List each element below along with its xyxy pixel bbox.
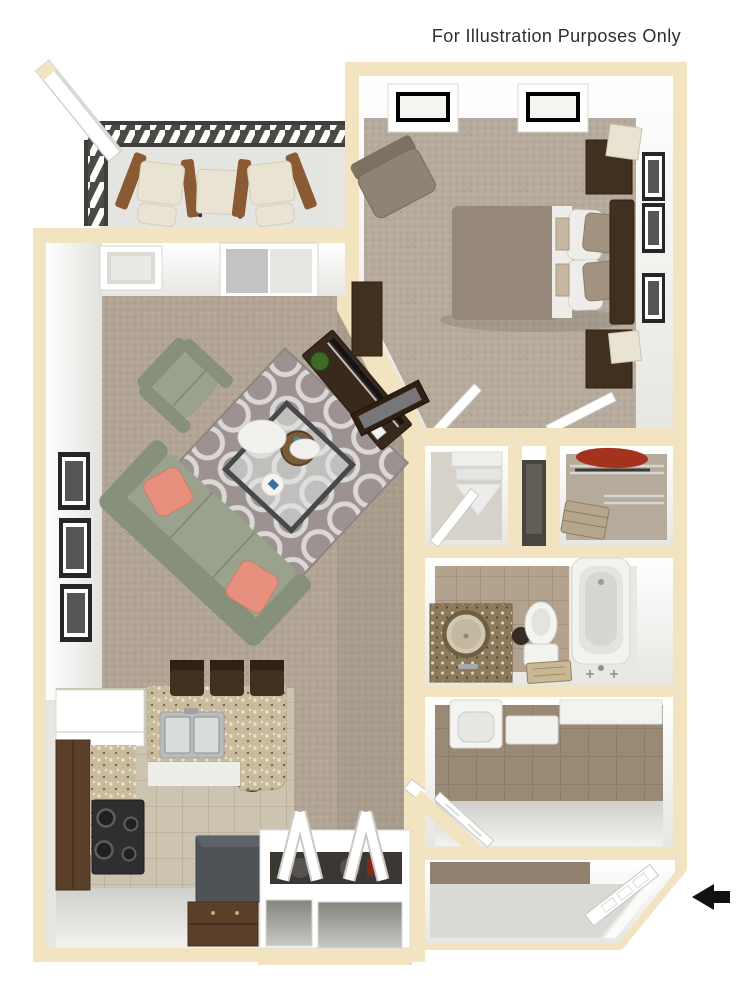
bedroom-window [518,84,588,132]
lamp [606,124,642,160]
washer [450,700,502,748]
bedroom-wall-art [642,152,665,323]
vanity-faucet [458,664,478,669]
floorplan-image: For Illustration Purposes Only [0,0,750,1000]
dryer [506,716,558,744]
closet-lower-opening [266,900,312,946]
kitchen [46,660,294,948]
kitchen-counter-white [56,690,144,746]
counter-side-face [148,762,240,786]
stove [92,800,144,874]
living-window [100,246,162,290]
bed [440,200,634,332]
kitchen-chest [188,902,258,946]
bar-stools [170,660,284,696]
accent-pillow [556,264,569,296]
tub-spout [598,665,604,671]
closet-row [413,428,687,560]
headboard [610,200,634,324]
vanity [430,604,512,682]
basket [561,500,610,539]
walk-in-closet [560,446,673,546]
kitchen-sink [160,708,224,758]
water-heater [526,464,542,534]
balcony-right-wall [330,143,345,228]
laundry-room [412,697,673,866]
entry-carpet [430,862,590,884]
linen-closet [425,446,508,547]
refrigerator [196,836,268,902]
bathroom [413,558,687,697]
dresser [352,282,382,356]
utility-closet [522,446,546,546]
balcony-sliding-door [220,243,318,299]
laundry-closet [260,812,410,948]
bathtub [572,558,630,678]
faucet [184,708,198,714]
wall-art-frames [58,452,92,642]
accent-pillow [556,218,569,250]
disclaimer-text: For Illustration Purposes Only [432,26,681,46]
laundry-shelf [560,700,662,724]
towel-tray [526,660,571,683]
floor-plan: For Illustration Purposes Only [0,0,750,1000]
lamp [609,331,642,364]
toilet [524,602,558,666]
bedroom-window [388,84,458,132]
closet-lower-opening [318,902,402,948]
